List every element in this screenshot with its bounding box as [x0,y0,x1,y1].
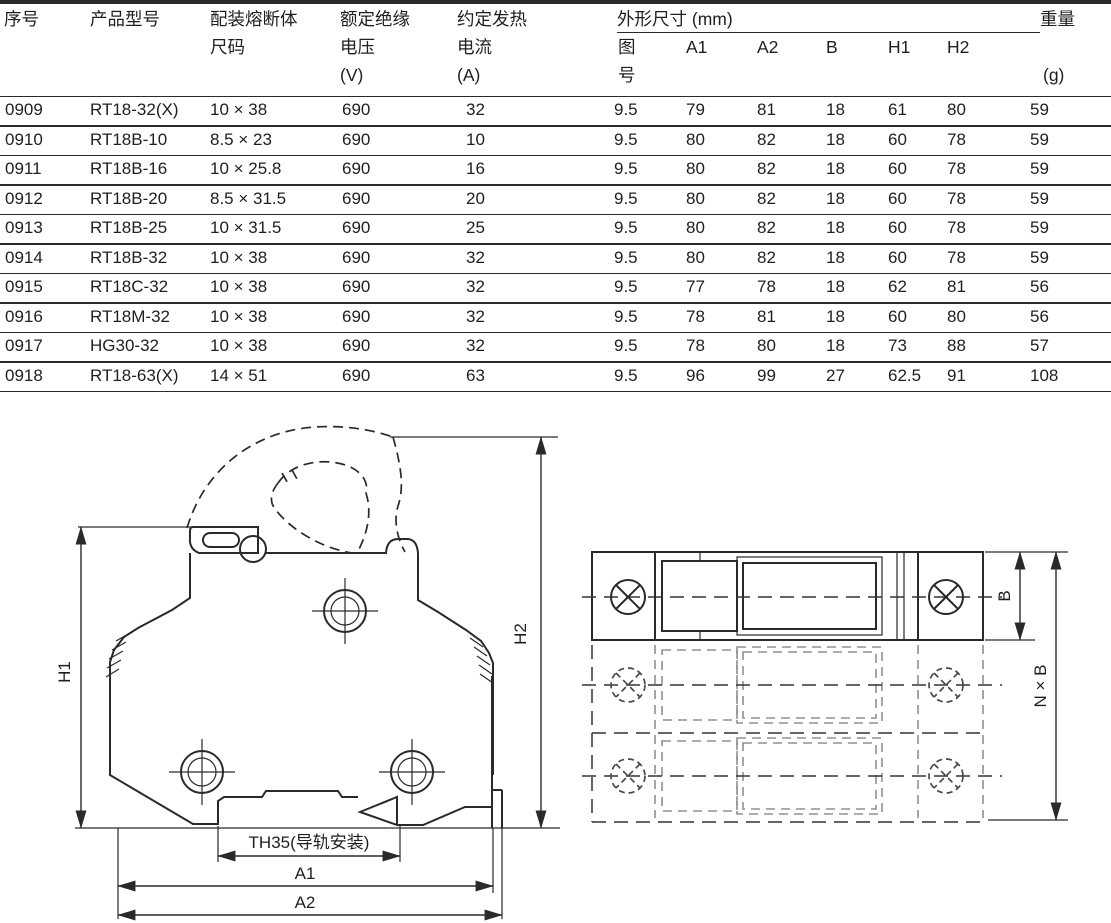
row-separator [0,243,1111,245]
table-cell: 80 [686,159,705,179]
header-current-line3: (A) [457,65,480,85]
table-cell: 96 [686,366,705,386]
table-cell: 59 [1030,248,1049,268]
table-cell: RT18B-32 [90,248,167,268]
table-cell: RT18B-25 [90,218,167,238]
table-cell: 79 [686,100,705,120]
header-figure-line1: 图 [618,37,636,57]
dim-label-h2: H2 [511,623,530,645]
header-dims-group: 外形尺寸 (mm) [617,9,733,29]
table-cell: 60 [888,307,907,327]
table-cell: 81 [947,277,966,297]
table-cell: 91 [947,366,966,386]
front-view-dimensions: H1 H2 TH35(导轨安装) A1 A2 [55,437,560,919]
table-cell: 56 [1030,307,1049,327]
table-cell: 80 [947,307,966,327]
table-cell: 82 [757,248,776,268]
table-cell: 32 [466,100,485,120]
table-cell: 9.5 [614,277,638,297]
cover-open-dashed [187,427,405,553]
row-separator [0,125,1111,127]
table-cell: 81 [757,307,776,327]
table-cell: 62 [888,277,907,297]
table-cell: 82 [757,189,776,209]
table-cell: HG30-32 [90,336,159,356]
table-cell: 690 [342,366,370,386]
table-cell: 0915 [5,277,43,297]
row-separator [0,214,1111,216]
table-cell: 80 [757,336,776,356]
table-cell: 9.5 [614,366,638,386]
table-cell: 32 [466,248,485,268]
row-separator [0,302,1111,304]
table-cell: 10 × 38 [210,336,267,356]
row-separator [0,155,1111,157]
table-cell: 56 [1030,277,1049,297]
table-cell: 10 [466,130,485,150]
header-underline [0,96,1111,98]
table-cell: 78 [947,159,966,179]
table-cell: 80 [947,100,966,120]
table-cell: 59 [1030,218,1049,238]
table-cell: 0909 [5,100,43,120]
table-cell: 82 [757,130,776,150]
table-cell: 690 [342,307,370,327]
table-cell: 9.5 [614,100,638,120]
header-current-line2: 电流 [457,37,492,57]
table-cell: 82 [757,218,776,238]
table-cell: 32 [466,336,485,356]
top-view-diagram: B N × B [580,538,1080,830]
table-cell: 18 [826,277,845,297]
table-cell: RT18-32(X) [90,100,179,120]
row-separator [0,332,1111,334]
table-cell: RT18C-32 [90,277,168,297]
table-cell: RT18M-32 [90,307,170,327]
table-cell: 60 [888,218,907,238]
pole-units-ghost [582,645,1002,822]
catalog-page: 序号 产品型号 配装熔断体 尺码 额定绝缘 电压 (V) 约定发热 电流 (A)… [0,0,1111,923]
table-cell: 690 [342,130,370,150]
table-cell: 8.5 × 31.5 [210,189,286,209]
pole-unit-solid [582,552,1002,640]
table-cell: 18 [826,218,845,238]
table-cell: 0914 [5,248,43,268]
table-cell: 60 [888,248,907,268]
header-figure-line2: 号 [618,65,636,85]
table-cell: 78 [947,130,966,150]
table-cell: 57 [1030,336,1049,356]
table-cell: 18 [826,248,845,268]
fuse-holder-body [106,527,502,828]
table-cell: 88 [947,336,966,356]
table-cell: 10 × 38 [210,277,267,297]
table-cell: 108 [1030,366,1058,386]
dim-label-nxb: N × B [1031,665,1050,708]
table-cell: 9.5 [614,189,638,209]
screw-crosshair-icons [169,578,445,805]
table-cell: 18 [826,336,845,356]
table-cell: 78 [947,218,966,238]
table-cell: 9.5 [614,248,638,268]
table-cell: 18 [826,307,845,327]
row-separator [0,273,1111,275]
table-cell: 59 [1030,189,1049,209]
rail-label: TH35(导轨安装) [249,833,370,852]
header-serial: 序号 [4,9,39,29]
header-weight-line1: 重量 [1040,9,1075,29]
table-cell: 0910 [5,130,43,150]
table-cell: 9.5 [614,307,638,327]
table-cell: 18 [826,130,845,150]
header-a2: A2 [757,37,778,57]
header-b: B [826,37,838,57]
table-cell: 32 [466,277,485,297]
dim-label-a1: A1 [295,864,316,883]
dim-label-a2: A2 [295,893,316,912]
table-cell: 10 × 25.8 [210,159,281,179]
table-cell: 78 [947,248,966,268]
table-cell: 82 [757,159,776,179]
header-voltage-line2: 电压 [340,37,375,57]
table-cell: 14 × 51 [210,366,267,386]
header-model: 产品型号 [90,9,160,29]
table-cell: 78 [947,189,966,209]
header-h1: H1 [888,37,910,57]
table-cell: RT18B-10 [90,130,167,150]
table-cell: 59 [1030,100,1049,120]
header-voltage-line1: 额定绝缘 [340,9,410,29]
table-cell: 18 [826,100,845,120]
header-fuse-size-line2: 尺码 [210,37,245,57]
table-cell: 78 [686,307,705,327]
table-cell: 77 [686,277,705,297]
table-cell: 25 [466,218,485,238]
table-cell: 9.5 [614,218,638,238]
header-voltage-line3: (V) [340,65,363,85]
table-cell: RT18B-20 [90,189,167,209]
table-cell: 690 [342,218,370,238]
dim-label-h1: H1 [55,661,74,683]
row-separator [0,391,1111,393]
table-cell: 0918 [5,366,43,386]
row-separator [0,184,1111,186]
header-a1: A1 [686,37,707,57]
table-cell: 0912 [5,189,43,209]
table-cell: 18 [826,159,845,179]
table-cell: 690 [342,159,370,179]
dim-label-b: B [995,590,1014,601]
table-cell: 10 × 38 [210,248,267,268]
table-cell: 9.5 [614,130,638,150]
table-cell: 10 × 38 [210,307,267,327]
table-cell: 9.5 [614,336,638,356]
table-cell: 8.5 × 23 [210,130,272,150]
table-cell: 63 [466,366,485,386]
table-cell: 16 [466,159,485,179]
table-cell: RT18B-16 [90,159,167,179]
table-cell: 10 × 38 [210,100,267,120]
table-cell: 80 [686,130,705,150]
table-cell: 78 [757,277,776,297]
table-cell: 59 [1030,130,1049,150]
table-cell: 60 [888,130,907,150]
row-separator [0,361,1111,363]
header-fuse-size-line1: 配装熔断体 [210,9,298,29]
header-weight-line3: (g) [1043,65,1064,85]
table-cell: 80 [686,248,705,268]
table-cell: 60 [888,189,907,209]
table-cell: 80 [686,189,705,209]
table-cell: 99 [757,366,776,386]
table-cell: 81 [757,100,776,120]
table-cell: 0913 [5,218,43,238]
table-cell: 690 [342,100,370,120]
table-cell: 690 [342,277,370,297]
table-cell: 32 [466,307,485,327]
table-cell: 78 [686,336,705,356]
front-view-diagram: H1 H2 TH35(导轨安装) A1 A2 [28,420,570,923]
table-cell: 690 [342,248,370,268]
table-cell: 20 [466,189,485,209]
table-top-rule [0,0,1111,4]
table-cell: 10 × 31.5 [210,218,281,238]
table-cell: 73 [888,336,907,356]
table-cell: 27 [826,366,845,386]
table-cell: 0916 [5,307,43,327]
table-cell: 62.5 [888,366,921,386]
table-cell: 61 [888,100,907,120]
dims-group-underline [617,32,1040,34]
table-cell: RT18-63(X) [90,366,179,386]
table-cell: 0911 [5,159,42,179]
table-cell: 690 [342,336,370,356]
table-cell: 9.5 [614,159,638,179]
table-cell: 59 [1030,159,1049,179]
table-cell: 0917 [5,336,43,356]
table-cell: 60 [888,159,907,179]
table-cell: 18 [826,189,845,209]
table-cell: 690 [342,189,370,209]
header-current-line1: 约定发热 [457,9,527,29]
table-cell: 80 [686,218,705,238]
header-h2: H2 [947,37,969,57]
top-view-dimensions: B N × B [985,552,1068,820]
